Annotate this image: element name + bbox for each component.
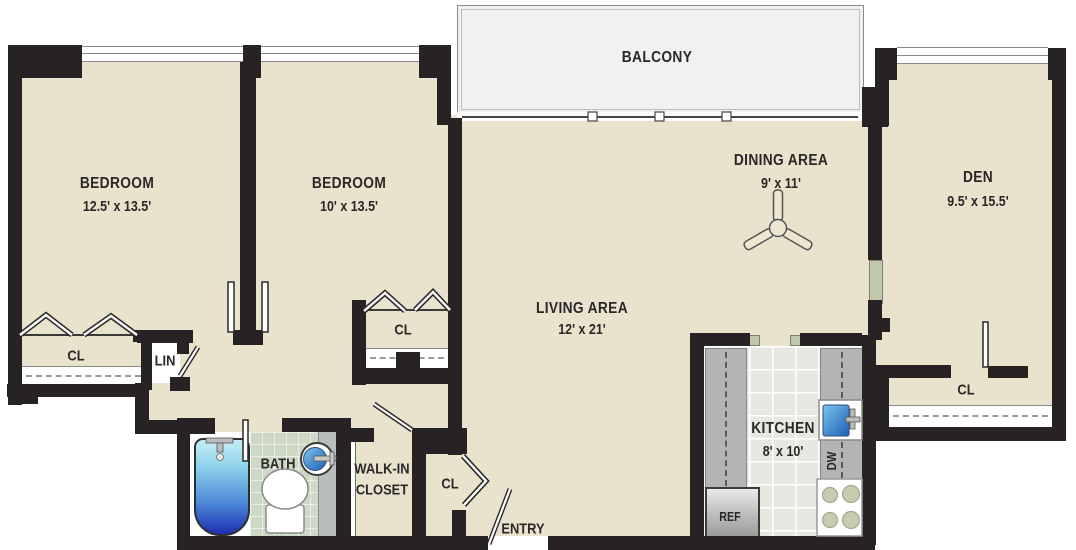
balcony-label: BALCONY <box>622 49 692 67</box>
wall-segment <box>141 335 152 390</box>
wall-segment <box>875 48 889 126</box>
bathtub-icon <box>194 438 250 536</box>
kitchen-counter-left <box>705 348 747 490</box>
wall-segment <box>8 45 22 405</box>
living-area-dims: 12' x 21' <box>558 322 606 338</box>
outside-area <box>0 397 135 550</box>
closet-front-line <box>22 334 145 336</box>
bath-label: BATH <box>261 456 296 473</box>
den-dims: 9.5' x 15.5' <box>947 194 1008 210</box>
wall-segment <box>135 420 215 434</box>
wall-segment <box>437 45 451 125</box>
wall-segment <box>240 60 256 333</box>
bedroom-middle-label: BEDROOM <box>312 175 386 193</box>
floor-plan-canvas: BALCONY BEDROOM 12.5' x 13.5' BEDROOM 10… <box>0 0 1076 550</box>
bath-vanity-band <box>318 432 337 536</box>
closet-label-den: CL <box>957 382 974 399</box>
dishwasher-label: DW <box>825 452 839 471</box>
dining-area-label: DINING AREA <box>734 152 828 170</box>
wall-segment <box>452 510 466 538</box>
walkin-closet-label-line1: WALK-IN <box>354 461 409 478</box>
walkin-closet-label-line2: CLOSET <box>356 482 408 499</box>
window <box>261 46 419 62</box>
wall-segment <box>690 335 704 545</box>
wall-segment <box>868 110 882 260</box>
wall-segment <box>177 342 189 354</box>
bedroom-left-dims: 12.5' x 13.5' <box>83 199 151 215</box>
wall-segment <box>233 330 263 345</box>
bedroom-middle-dims: 10' x 13.5' <box>320 199 378 215</box>
window <box>897 47 1048 64</box>
wall-segment <box>988 366 1028 378</box>
wall-segment <box>396 352 420 372</box>
wall-segment <box>448 118 462 455</box>
wall-segment <box>177 536 488 550</box>
closet-shelf <box>22 366 145 386</box>
den-label: DEN <box>963 169 993 187</box>
wall-segment <box>875 365 889 441</box>
wall-segment <box>177 418 190 538</box>
wall-segment <box>7 384 147 397</box>
door-jamb-strip <box>869 260 883 304</box>
closet-shelf <box>889 405 1052 428</box>
entry-label: ENTRY <box>501 521 544 538</box>
bedroom-left-label: BEDROOM <box>80 175 154 193</box>
wall-segment <box>875 427 1066 441</box>
bath-tile-floor <box>250 432 318 536</box>
wall-segment <box>412 428 426 538</box>
outside-area <box>135 434 177 550</box>
wall-segment <box>1052 48 1066 440</box>
closet-label-bedroom-middle: CL <box>394 322 411 339</box>
closet-label-bedroom-left: CL <box>67 348 84 365</box>
refrigerator-label: REF <box>719 510 741 524</box>
wall-segment <box>800 333 862 346</box>
window <box>82 46 243 62</box>
closet-front-line <box>366 309 448 311</box>
wall-segment <box>170 377 190 391</box>
wall-segment <box>862 335 876 545</box>
dining-area-dims: 9' x 11' <box>761 176 801 192</box>
wall-segment <box>690 333 750 346</box>
closet-label-entry: CL <box>441 476 458 493</box>
kitchen-label: KITCHEN <box>751 420 815 438</box>
outside-area <box>876 441 1076 550</box>
wall-segment <box>548 536 875 550</box>
living-area-label: LIVING AREA <box>536 300 628 318</box>
wall-segment <box>874 318 890 332</box>
wall-segment <box>133 330 147 342</box>
wall-segment <box>336 428 374 442</box>
linen-closet-label: LIN <box>155 353 176 370</box>
sliding-door-strip <box>457 112 862 121</box>
kitchen-dims: 8' x 10' <box>763 444 804 460</box>
